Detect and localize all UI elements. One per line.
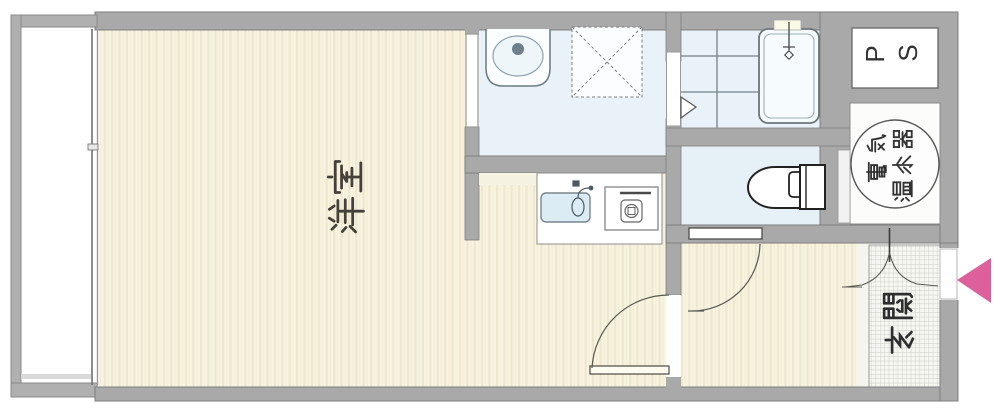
svg-text:S: S	[893, 44, 923, 61]
svg-text:P: P	[860, 45, 890, 62]
